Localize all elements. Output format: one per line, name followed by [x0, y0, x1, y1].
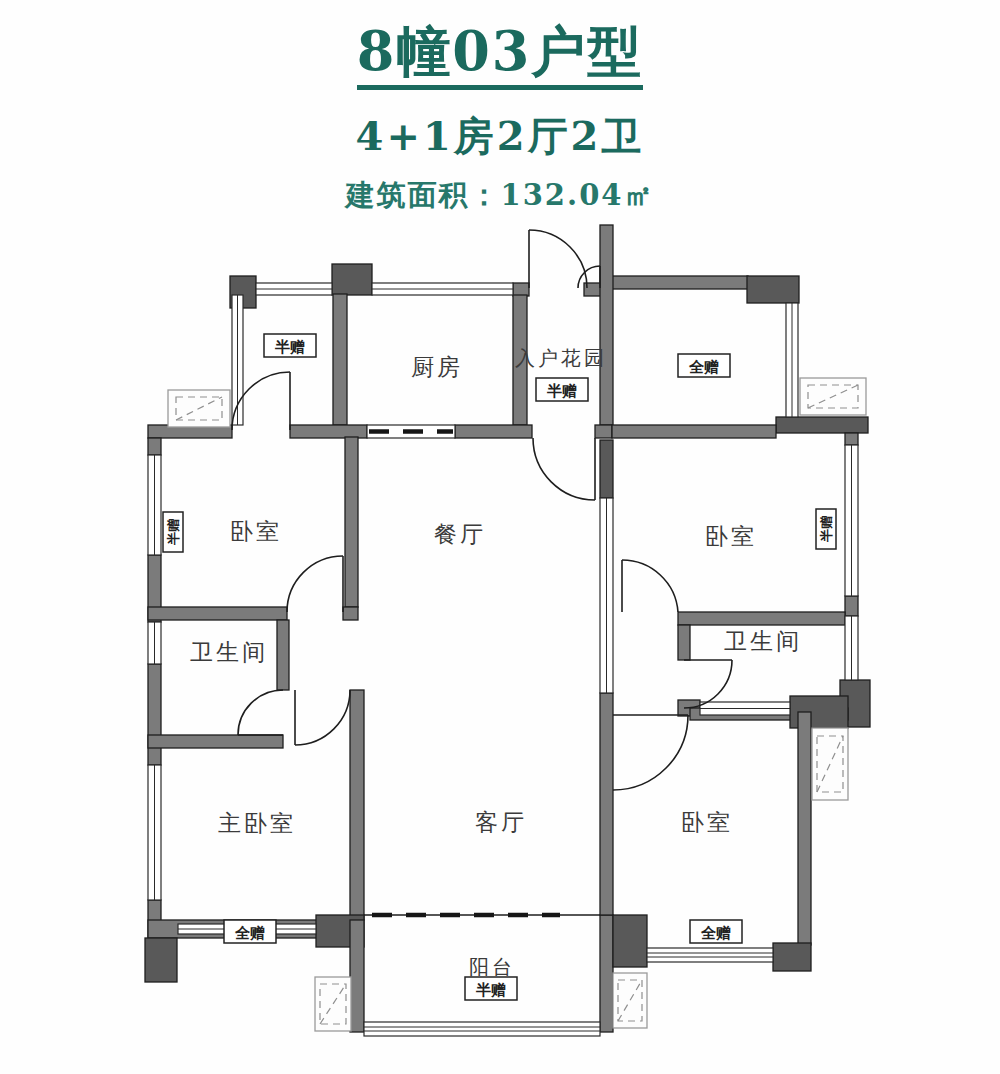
room-label-bedroom-bottom-right: 卧室 — [681, 809, 733, 835]
ac-platform-right — [812, 728, 848, 800]
svg-text:半赠: 半赠 — [546, 382, 577, 399]
room-label-bathroom-left: 卫生间 — [190, 639, 268, 665]
svg-text:全赠: 全赠 — [234, 924, 265, 941]
header: 8幢03户型 4+1房2厅2卫 建筑面积：132.04㎡ — [0, 0, 1000, 216]
svg-text:半赠: 半赠 — [475, 981, 506, 998]
tag-full-gift-master-bedroom: 全赠 — [224, 920, 276, 943]
tag-half-gift-entry-garden: 半赠 — [536, 378, 588, 401]
tag-half-gift-top-left-room: 半赠 — [264, 334, 316, 357]
room-label-bedroom-top-left: 卧室 — [230, 518, 282, 544]
floorplan-page: 8幢03户型 4+1房2厅2卫 建筑面积：132.04㎡ — [0, 0, 1000, 1074]
doors — [232, 230, 732, 790]
room-label-entry-garden: 入户花园 — [515, 347, 607, 369]
room-label-bathroom-right: 卫生间 — [724, 628, 802, 654]
room-label-kitchen: 厨房 — [411, 354, 463, 380]
room-label-bedroom-top-right: 卧室 — [705, 523, 757, 549]
tag-half-gift-balcony: 半赠 — [465, 977, 517, 1000]
tag-half-gift-right-bay-window: 半赠 — [816, 509, 836, 549]
svg-text:半赠: 半赠 — [819, 515, 834, 542]
ac-platform-top-right — [800, 378, 866, 415]
room-label-living: 客厅 — [475, 809, 527, 835]
tag-full-gift-top-right-room: 全赠 — [678, 354, 730, 377]
svg-text:全赠: 全赠 — [700, 924, 731, 941]
page-title: 8幢03户型 — [0, 16, 1000, 89]
entry-to-dining-door — [533, 438, 595, 500]
svg-text:全赠: 全赠 — [688, 358, 719, 375]
area-label: 建筑面积：132.04㎡ — [0, 176, 1000, 216]
main-entry-door — [529, 230, 600, 288]
tag-full-gift-bedroom-bottom-right: 全赠 — [690, 920, 742, 943]
svg-text:半赠: 半赠 — [274, 338, 305, 355]
room-label-dining: 餐厅 — [434, 521, 486, 547]
bedroom-top-right-door — [622, 560, 678, 612]
ac-platform-top-left — [168, 390, 230, 427]
ac-platform-bottom-right — [613, 973, 647, 1028]
svg-text:半赠: 半赠 — [166, 518, 181, 545]
ac-platform-bottom-left — [315, 977, 351, 1031]
bedroom-bottom-right-door — [613, 715, 688, 790]
master-bedroom-door — [295, 690, 350, 745]
room-label-master-bedroom: 主卧室 — [218, 810, 296, 836]
layout-subtitle: 4+1房2厅2卫 — [0, 109, 1000, 164]
tag-half-gift-left-bay-window: 半赠 — [163, 512, 183, 552]
bathroom-left-door — [238, 690, 283, 735]
room-label-balcony: 阳台 — [469, 956, 515, 978]
bedroom-top-left-door — [287, 556, 343, 612]
